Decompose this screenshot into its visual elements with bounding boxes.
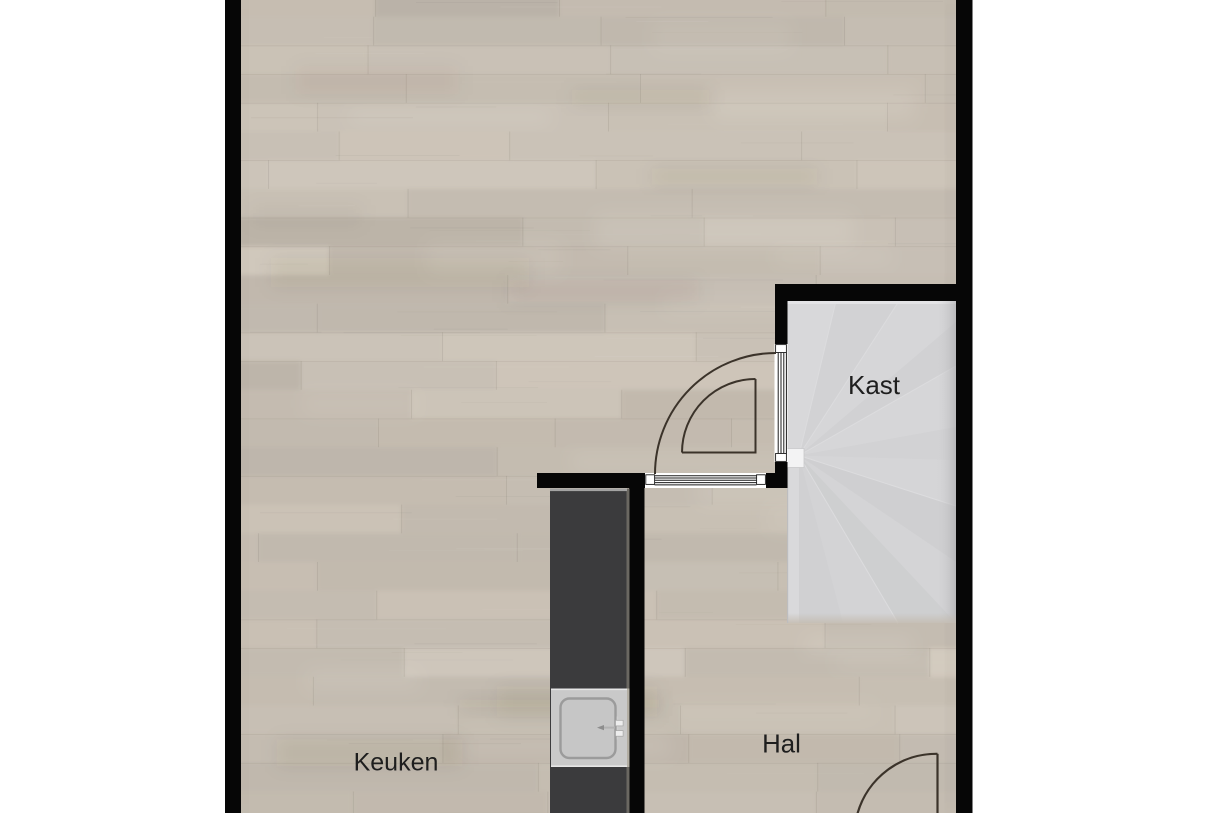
svg-text:Kast: Kast: [848, 370, 901, 400]
svg-text:Keuken: Keuken: [354, 749, 439, 777]
svg-text:Hal: Hal: [762, 731, 801, 759]
